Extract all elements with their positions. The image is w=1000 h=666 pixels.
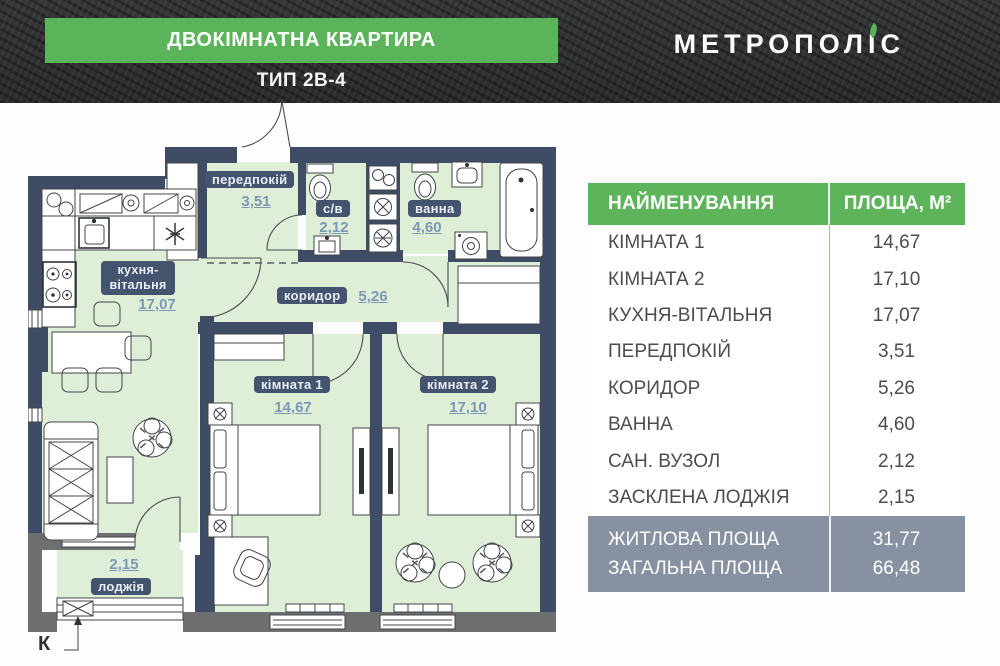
room-area-bath: 4,60: [405, 219, 449, 236]
table-summary: ЖИТЛОВА ПЛОЩА31,77 ЗАГАЛЬНА ПЛОЩА66,48: [588, 516, 965, 592]
table-row: КОРИДОР5,26: [588, 371, 965, 407]
room-area-corridor: 5,26: [351, 288, 395, 305]
col-header-area: ПЛОЩА, М²: [830, 183, 965, 225]
room-area-room1: 14,67: [269, 399, 317, 416]
apartment-title-badge: ДВОКІМНАТНА КВАРТИРА: [45, 18, 558, 63]
room-label-room2: кімната 2: [420, 376, 496, 393]
table-body: КІМНАТА 114,67 КІМНАТА 217,10 КУХНЯ-ВІТА…: [588, 225, 965, 516]
table-row: КУХНЯ-ВІТАЛЬНЯ17,07: [588, 298, 965, 334]
area-table: НАЙМЕНУВАННЯ ПЛОЩА, М² КІМНАТА 114,67 КІ…: [588, 183, 965, 592]
table-row: ЗАСКЛЕНА ЛОДЖІЯ2,15: [588, 480, 965, 516]
room-area-hall: 3,51: [234, 193, 278, 210]
room-label-bath: ванна: [408, 200, 461, 217]
room-area-room2: 17,10: [444, 399, 492, 416]
table-row: КІМНАТА 217,10: [588, 261, 965, 297]
summary-row: ЖИТЛОВА ПЛОЩА31,77: [588, 525, 965, 554]
metropolis-logo: МЕТРОПОЛІС: [674, 29, 905, 60]
room-label-loggia: лоджія: [91, 578, 151, 595]
table-row: ВАННА4,60: [588, 407, 965, 443]
room-area-kitchen: 17,07: [133, 296, 181, 313]
table-row: КІМНАТА 114,67: [588, 225, 965, 261]
coffee-table: [107, 457, 133, 503]
apartment-type: ТИП 2В-4: [45, 70, 558, 92]
room-label-wc: с/в: [316, 200, 350, 217]
vent-shaft: [369, 166, 397, 252]
table-row: ПЕРЕДПОКІЙ3,51: [588, 334, 965, 370]
sofa: [44, 422, 98, 540]
summary-row: ЗАГАЛЬНА ПЛОЩА66,48: [588, 554, 965, 583]
desk-room1: [214, 537, 273, 605]
header-banner: ДВОКІМНАТНА КВАРТИРА ТИП 2В-4 МЕТРОПОЛІС: [0, 0, 1000, 103]
page: ДВОКІМНАТНА КВАРТИРА ТИП 2В-4 МЕТРОПОЛІС: [0, 0, 1000, 666]
table-row: САН. ВУЗОЛ2,12: [588, 443, 965, 479]
room-area-loggia: 2,15: [102, 556, 146, 573]
room-label-room1: кімната 1: [254, 376, 330, 393]
table-header: НАЙМЕНУВАННЯ ПЛОЩА, М²: [588, 183, 965, 225]
logo-text-end: С: [881, 29, 906, 59]
summary-divider: [829, 516, 831, 592]
room-label-kitchen: кухня-вітальня: [101, 261, 175, 295]
column-separator: [829, 225, 830, 516]
room-label-corridor: коридор: [277, 287, 347, 304]
apartment-title: ДВОКІМНАТНА КВАРТИРА: [167, 29, 436, 52]
conditioner-k-label: К: [38, 633, 50, 656]
col-header-name: НАЙМЕНУВАННЯ: [588, 183, 828, 225]
room-label-hall: передпокій: [205, 171, 294, 188]
round-table: [439, 562, 465, 588]
room-area-wc: 2,12: [312, 219, 356, 236]
logo-text: МЕТРОПОЛ: [674, 29, 868, 59]
conditioner-marker: [63, 601, 93, 650]
